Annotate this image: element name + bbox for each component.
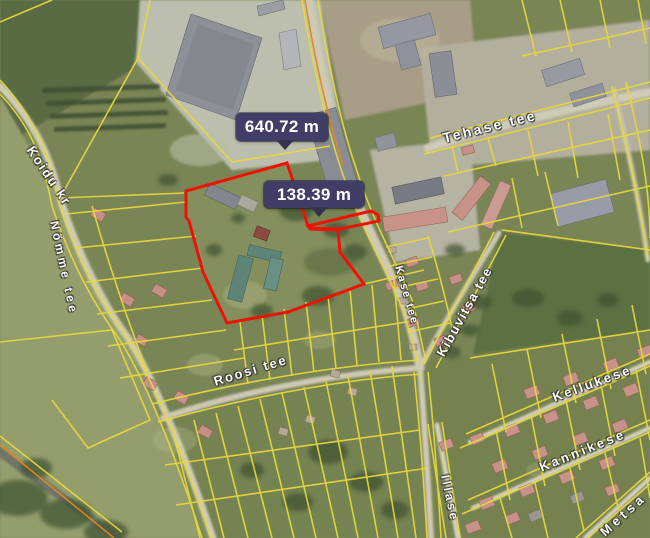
map-viewport[interactable]: Koidu kr Nõmme tee Tehase tee Kase tee K… [0,0,650,538]
satellite-map[interactable] [0,0,650,538]
